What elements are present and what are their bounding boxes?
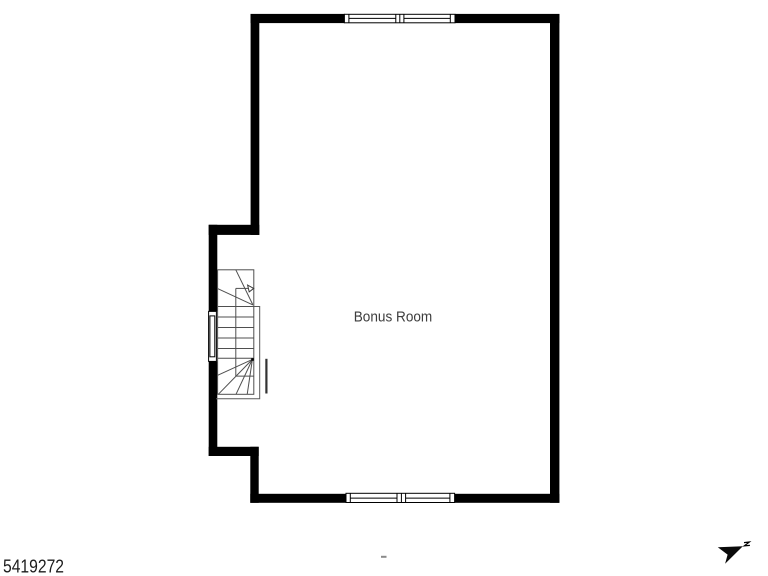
svg-text:5419272: 5419272: [3, 556, 64, 576]
svg-text:Bonus Room: Bonus Room: [354, 309, 433, 326]
